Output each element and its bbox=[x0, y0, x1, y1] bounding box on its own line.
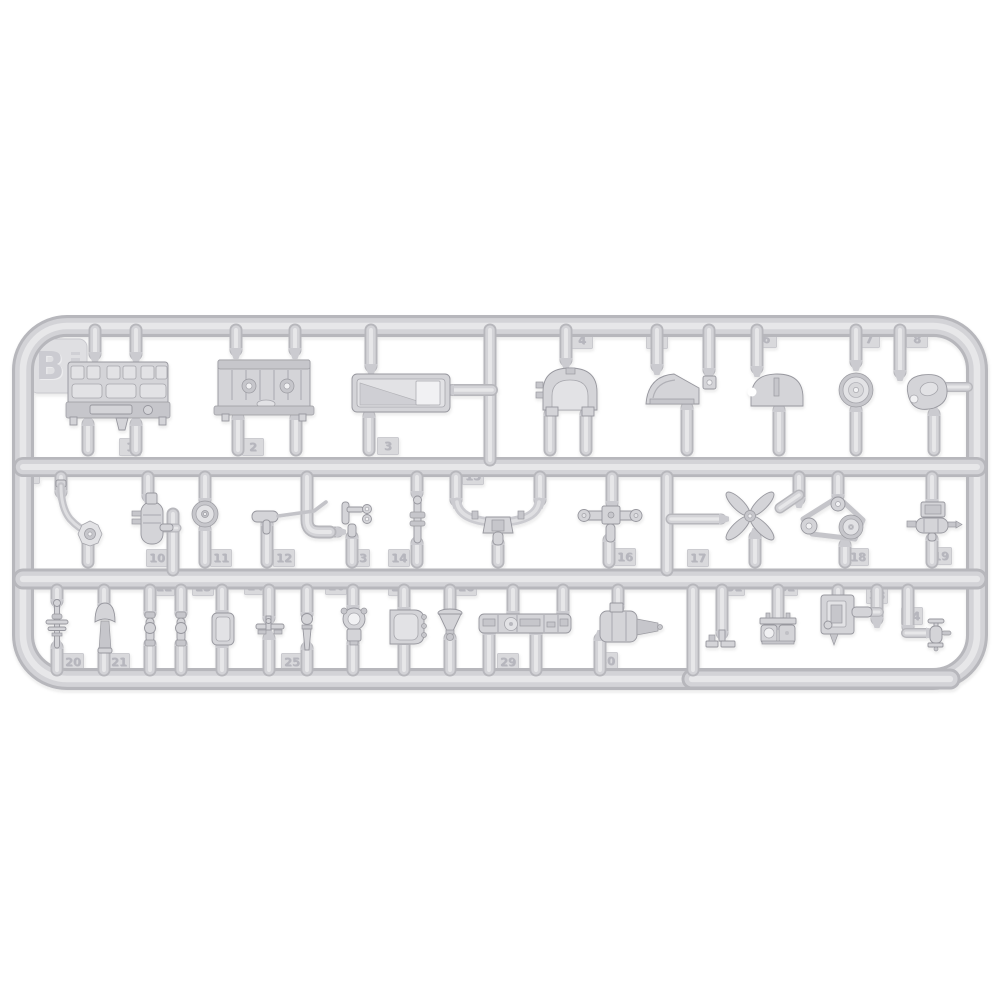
tab-number: 17 bbox=[690, 551, 706, 565]
part-small-carburetor bbox=[928, 619, 951, 651]
part-number-tab-14: 1414 bbox=[389, 550, 410, 567]
part-number-tab-25: 2525 bbox=[282, 654, 303, 671]
injection-gate bbox=[336, 527, 346, 538]
part-4-flywheel-housing bbox=[536, 368, 597, 416]
part-30-manifold-rail bbox=[479, 614, 571, 633]
part-number-tab-11: 1111 bbox=[211, 550, 232, 567]
part-8-mount-plate bbox=[907, 375, 947, 410]
part-28-access-cover bbox=[390, 610, 427, 644]
part-2-engine-block bbox=[214, 360, 314, 421]
part-24-cover-plate bbox=[212, 613, 234, 645]
part-23-link-barrel-b bbox=[176, 612, 187, 646]
tab-number: 20 bbox=[65, 655, 81, 669]
part-19-generator bbox=[907, 502, 962, 541]
injection-gate bbox=[719, 514, 729, 525]
part-3-oil-sump-pan bbox=[352, 374, 450, 412]
part-20-valve-linkage bbox=[46, 600, 68, 649]
tab-number: 11 bbox=[213, 551, 229, 565]
part-number-tab-16: 1616 bbox=[615, 549, 636, 566]
part-29-funnel bbox=[438, 609, 462, 641]
tab-number: 29 bbox=[500, 655, 516, 669]
part-number-tab-21: 2121 bbox=[109, 654, 130, 671]
tab-number: 21 bbox=[111, 655, 127, 669]
tab-number: 3 bbox=[384, 439, 392, 453]
tab-number: 18 bbox=[850, 550, 866, 564]
sprue-drawing: 1122334455667788991010111112121313141415… bbox=[0, 0, 1000, 1000]
part-small-bracket-plate bbox=[703, 376, 716, 389]
part-27-filler-clamp bbox=[341, 608, 367, 645]
part-number-tab-29: 2929 bbox=[498, 654, 519, 671]
mold-mark bbox=[71, 352, 80, 355]
part-34-magneto bbox=[821, 595, 872, 645]
part-16-handle-bar bbox=[578, 506, 642, 542]
part-number-tab-12: 1212 bbox=[274, 550, 295, 567]
part-32-pedal-base bbox=[706, 630, 735, 647]
part-number-tab-20: 2020 bbox=[63, 654, 84, 671]
tab-number: 12 bbox=[276, 551, 292, 565]
part-21-air-horn bbox=[95, 603, 115, 653]
tab-number: 16 bbox=[617, 550, 633, 564]
part-number-tab-2: 22 bbox=[243, 439, 264, 456]
mold-mark bbox=[71, 358, 80, 361]
part-6-semicircular-cover bbox=[748, 374, 804, 406]
part-9-exhaust-elbow-pipe bbox=[56, 480, 102, 546]
part-number-tab-17: 1717 bbox=[688, 550, 709, 567]
part-22-link-barrel-a bbox=[145, 612, 156, 646]
part-7-pulley-wheel bbox=[839, 373, 873, 407]
tab-number: 10 bbox=[149, 551, 165, 565]
part-number-tab-10: 1010 bbox=[147, 550, 168, 567]
tab-number: 2 bbox=[249, 440, 257, 454]
tab-number: 25 bbox=[284, 655, 300, 669]
part-5-side-cover bbox=[646, 374, 699, 404]
tab-number: 14 bbox=[391, 551, 407, 565]
part-18-belt-pulley-set bbox=[801, 497, 863, 539]
part-1-engine-cylinder-head bbox=[66, 362, 170, 430]
part-13-clamp-bracket bbox=[342, 502, 372, 537]
part-14-small-linkage bbox=[410, 496, 425, 543]
part-31-starter-motor bbox=[600, 603, 663, 642]
sprue-photo: 1122334455667788991010111112121313141415… bbox=[0, 0, 1000, 1000]
part-15-intake-manifold bbox=[457, 502, 539, 545]
part-11-small-pulley bbox=[192, 501, 218, 527]
part-number-tab-3: 33 bbox=[378, 438, 399, 455]
